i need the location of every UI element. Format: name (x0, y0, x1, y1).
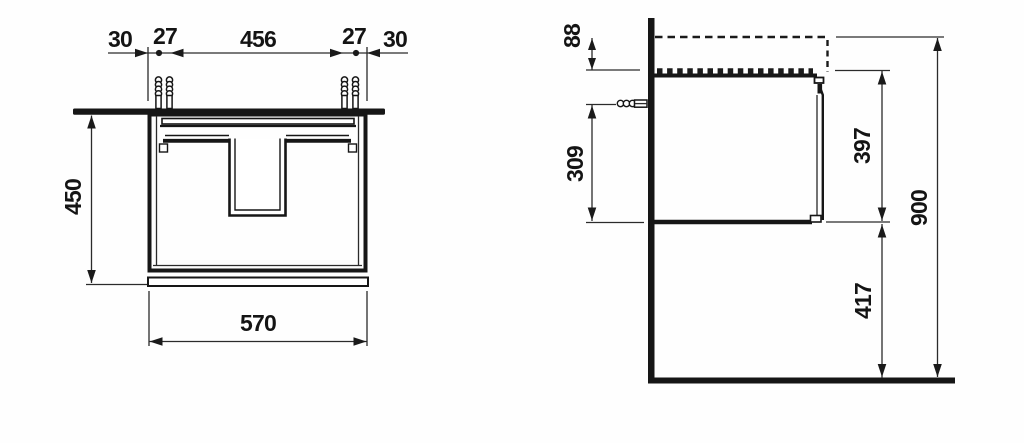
dim-label-397: 397 (849, 128, 875, 164)
front-panel-bottom-step (811, 216, 822, 223)
dim-label-309: 309 (562, 146, 588, 182)
arrowhead-right-icon (330, 49, 343, 58)
arrowhead-down-icon (588, 58, 596, 70)
dim-total-height-900: 900 (836, 37, 944, 377)
dim-label-27-left: 27 (153, 23, 177, 49)
dim-height-450: 450 (60, 116, 147, 285)
arrowhead-up-icon (933, 38, 942, 51)
cabinet-carcass-side (654, 76, 824, 223)
arrowhead-down-icon (933, 364, 942, 377)
dim-label-900: 900 (906, 190, 932, 226)
arrowhead-down-icon (878, 364, 887, 377)
hanger-bolt-icon (166, 77, 172, 109)
wall-section (648, 18, 655, 383)
washbasin-dashed-outline (655, 37, 828, 72)
dim-label-450: 450 (60, 179, 86, 215)
arrowhead-up-icon (878, 225, 887, 238)
dim-label-417: 417 (850, 283, 876, 319)
arrowhead-left-icon (171, 49, 184, 58)
wall-anchor-icon (617, 100, 647, 107)
arrowhead-right-icon (354, 337, 367, 346)
hanger-bolt-icon (155, 77, 161, 109)
dimension-dot-right (353, 50, 359, 56)
arrowhead-down-icon (588, 208, 597, 221)
siphon-cutout (230, 139, 286, 216)
dim-clearance-417: 417 (850, 224, 886, 378)
arrowhead-up-icon (878, 72, 887, 85)
dim-label-30-left: 30 (108, 26, 132, 52)
arrowhead-left-icon (150, 337, 163, 346)
hanger-bolt-icon (341, 77, 347, 109)
arrowhead-down-icon (878, 208, 887, 221)
dimension-dot-left (156, 50, 162, 56)
vanity-unit-dimension-drawing: 30 27 456 27 30 (0, 0, 1024, 443)
dim-label-30-right: 30 (383, 26, 407, 52)
cabinet-carcass-front (148, 115, 368, 287)
dim-label-27-right: 27 (342, 23, 366, 49)
drawer-front-top-rail (162, 119, 354, 125)
technical-drawing-page: 30 27 456 27 30 (0, 0, 1024, 443)
front-panel-outer (819, 85, 823, 221)
arrowhead-left-icon (367, 49, 380, 58)
arrowhead-right-icon (135, 49, 148, 58)
mounting-clip (815, 78, 824, 84)
dim-anchor-309: 309 (562, 105, 644, 223)
dim-label-570: 570 (240, 310, 276, 336)
dim-basin-offset-88: 88 (559, 23, 640, 70)
dim-label-456: 456 (240, 26, 276, 52)
arrowhead-down-icon (87, 270, 96, 283)
arrowhead-up-icon (588, 39, 596, 51)
front-top-dimension-chain: 30 27 456 27 30 (108, 23, 408, 101)
dim-width-570: 570 (149, 291, 367, 346)
arrowhead-up-icon (588, 106, 597, 119)
side-view: 88 309 397 (559, 18, 955, 384)
dim-label-88: 88 (559, 23, 585, 48)
dim-cabinet-height-397: 397 (826, 71, 890, 223)
front-view: 30 27 456 27 30 (60, 23, 408, 346)
hanger-bolt-icon (352, 77, 358, 109)
bottom-panel (148, 278, 368, 287)
hanger-bolts (155, 77, 358, 109)
floor-line (648, 378, 955, 384)
arrowhead-up-icon (87, 116, 96, 129)
